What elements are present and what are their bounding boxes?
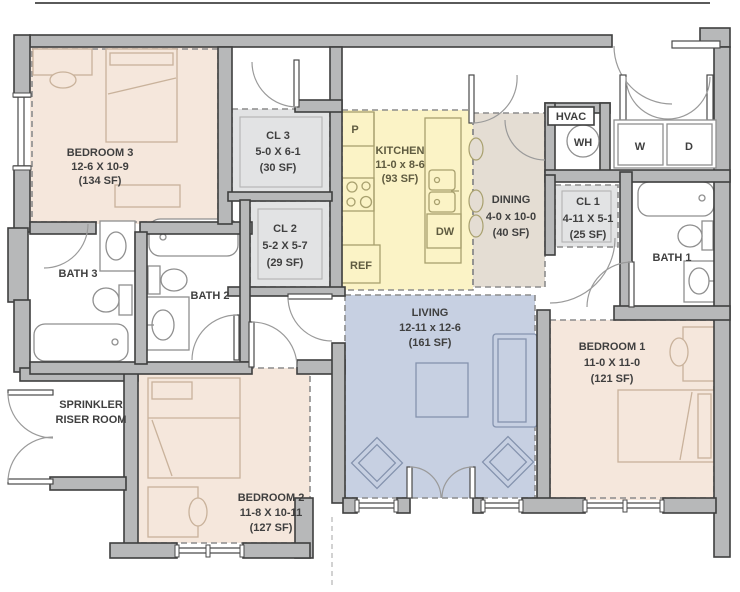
french-door-leaf-left: [407, 467, 412, 498]
window-cap: [660, 500, 664, 512]
toilet-bowl: [93, 288, 119, 312]
closet-1-area: (25 SF): [570, 229, 607, 241]
bath-1-name: BATH 1: [653, 252, 692, 264]
bedroom-1-dims: 11-0 X 11-0: [584, 357, 640, 369]
closet-1-name: CL 1: [576, 196, 600, 208]
wall-sprinkler-bottom: [50, 477, 126, 490]
sofa: [493, 334, 537, 427]
wall-bedroom3-south-east: [140, 222, 252, 234]
wall-bedroom2-south-east: [243, 543, 310, 558]
counter-stool: [469, 215, 483, 237]
wall-hall-stub: [295, 100, 342, 112]
window-cap: [583, 500, 587, 512]
bed: [148, 378, 240, 478]
closet-2-area: (29 SF): [267, 257, 304, 269]
wall-bedroom2-south-west: [110, 543, 177, 558]
wall-bath1-south: [614, 306, 730, 320]
bedroom-2-dims: 11-8 X 10-11: [240, 507, 302, 519]
bath2-door: [192, 315, 239, 360]
closet-2-name: CL 2: [273, 223, 297, 235]
window-bedroom1-south: [583, 500, 664, 512]
wall-sprinkler-east: [124, 368, 138, 546]
sprinkler-room-name-line1: SPRINKLER: [59, 399, 123, 411]
window-cap: [481, 500, 485, 512]
desk-chair: [50, 72, 76, 88]
desk-chair: [189, 498, 207, 526]
closet-1-dims: 4-11 X 5-1: [563, 213, 614, 225]
bedroom-3-area: (134 SF): [79, 175, 122, 187]
closet-3-dims: 5-0 X 6-1: [255, 146, 300, 158]
bath-1-fixtures: [638, 182, 715, 302]
wall-bottom-post-2: [397, 498, 410, 513]
toilet-bowl: [161, 269, 187, 291]
wall-cl1-west: [545, 175, 555, 255]
toilet-tank: [119, 285, 132, 315]
living-area: (161 SF): [409, 337, 452, 349]
wall-left-lower: [14, 300, 30, 372]
wall-top: [30, 35, 612, 47]
wall-bath3-bath2-divider: [135, 232, 147, 364]
toilet-tank: [702, 221, 713, 250]
wall-kitchen-west: [330, 47, 342, 290]
dryer-label: D: [685, 141, 693, 153]
bathtub: [34, 324, 128, 361]
door-leaf: [288, 294, 332, 299]
closet-3-area: (30 SF): [260, 162, 297, 174]
door-swing: [192, 315, 237, 360]
door-leaf-top: [8, 390, 53, 395]
door-swing: [252, 322, 297, 367]
bath-2-name: BATH 2: [191, 290, 230, 302]
closet-3-name: CL 3: [266, 130, 290, 142]
door-leaf: [469, 75, 474, 123]
desk: [33, 49, 92, 75]
desk-chair: [670, 338, 688, 366]
dining-area: (40 SF): [493, 227, 530, 239]
toilet-bowl: [678, 225, 702, 247]
door-leaf: [234, 315, 239, 360]
wall-left-pier: [8, 228, 28, 302]
french-door-leaf-right: [470, 467, 475, 498]
window-cap: [519, 500, 523, 512]
window-cap: [394, 500, 398, 512]
floor-plan-page: BEDROOM 3 12-6 X 10-9 (134 SF) CL 3 5-0 …: [0, 0, 740, 592]
hall-west-door: [252, 60, 299, 107]
wall-hvac-east: [600, 103, 610, 172]
window-bedroom3-west: [13, 93, 31, 170]
bedroom2-door: [249, 322, 297, 367]
bath-3-name: BATH 3: [59, 268, 98, 280]
bath-2-fixtures: [147, 219, 238, 350]
window-cap: [13, 166, 31, 170]
window-mullion: [623, 500, 627, 512]
washer-label: W: [635, 141, 646, 153]
counter-stool: [469, 190, 483, 212]
dining-name: DINING: [492, 194, 531, 206]
wall-living-east: [537, 310, 550, 503]
door-leaf: [249, 322, 254, 367]
sink-basin: [106, 232, 126, 260]
window-cap: [175, 545, 179, 557]
window-bedroom2-south: [175, 545, 244, 557]
refrigerator-label: REF: [350, 260, 372, 272]
window-cap: [13, 93, 31, 97]
window-cap: [240, 545, 244, 557]
floor-plan-svg: BEDROOM 3 12-6 X 10-9 (134 SF) CL 3 5-0 …: [0, 0, 740, 592]
window-living-west: [355, 500, 398, 512]
entry-door-leaf: [672, 41, 720, 48]
door-swing: [288, 297, 332, 341]
window-mullion: [206, 545, 210, 557]
dresser: [115, 185, 180, 207]
hvac-name: HVAC: [556, 111, 586, 123]
sprinkler-room-name-line2: RISER ROOM: [56, 414, 127, 426]
laundry-closet-doors: [620, 75, 713, 120]
bed: [618, 390, 714, 462]
hall-living-door: [288, 294, 332, 341]
bifold-jamb-left: [620, 75, 626, 120]
kitchen-dims: 11-0 x 8-6: [375, 159, 425, 171]
pantry-label: P: [351, 124, 358, 136]
bedroom-3-dims: 12-6 X 10-9: [71, 161, 128, 173]
sink-basin: [152, 310, 174, 340]
living-name: LIVING: [412, 307, 449, 319]
window-cap: [355, 500, 359, 512]
dishwasher-label: DW: [436, 226, 455, 238]
counter-stool: [469, 138, 483, 160]
wall-left-upper: [14, 35, 30, 97]
bedroom-1-area: (121 SF): [591, 373, 634, 385]
bedroom-2-name: BEDROOM 2: [238, 492, 305, 504]
water-heater-label: WH: [574, 137, 592, 149]
living-dims: 12-11 x 12-6: [399, 322, 461, 334]
door-swing: [252, 62, 297, 107]
wall-left-mid: [14, 166, 30, 232]
dining-dims: 4-0 x 10-0: [486, 211, 536, 223]
wall-living-west: [332, 343, 345, 503]
kitchen-area: (93 SF): [382, 173, 419, 185]
window-living-east: [481, 500, 523, 512]
closet-2-dims: 5-2 X 5-7: [262, 240, 307, 252]
bathtub: [638, 182, 714, 216]
sink-basin: [689, 268, 709, 294]
wall-bottom-mid: [522, 498, 585, 513]
door-swing-bottom: [8, 437, 53, 482]
bedroom-1-name: BEDROOM 1: [579, 341, 646, 353]
sprinkler-room-doors: [8, 390, 53, 484]
bedroom-3-name: BEDROOM 3: [67, 147, 134, 159]
coffee-table: [416, 363, 468, 417]
toilet-tank: [148, 266, 160, 294]
wall-bottom-east: [663, 498, 716, 513]
kitchen-name: KITCHEN: [376, 145, 425, 157]
bifold-swing-right: [668, 77, 710, 119]
bed: [106, 49, 177, 142]
wall-laundry-south: [545, 170, 730, 182]
door-leaf: [294, 60, 299, 107]
door-leaf-bottom: [8, 479, 53, 484]
wall-bedroom3-south-west: [30, 222, 96, 234]
door-swing-top: [8, 393, 53, 438]
bedroom-2-area: (127 SF): [250, 522, 293, 534]
door-leaf: [629, 262, 634, 307]
